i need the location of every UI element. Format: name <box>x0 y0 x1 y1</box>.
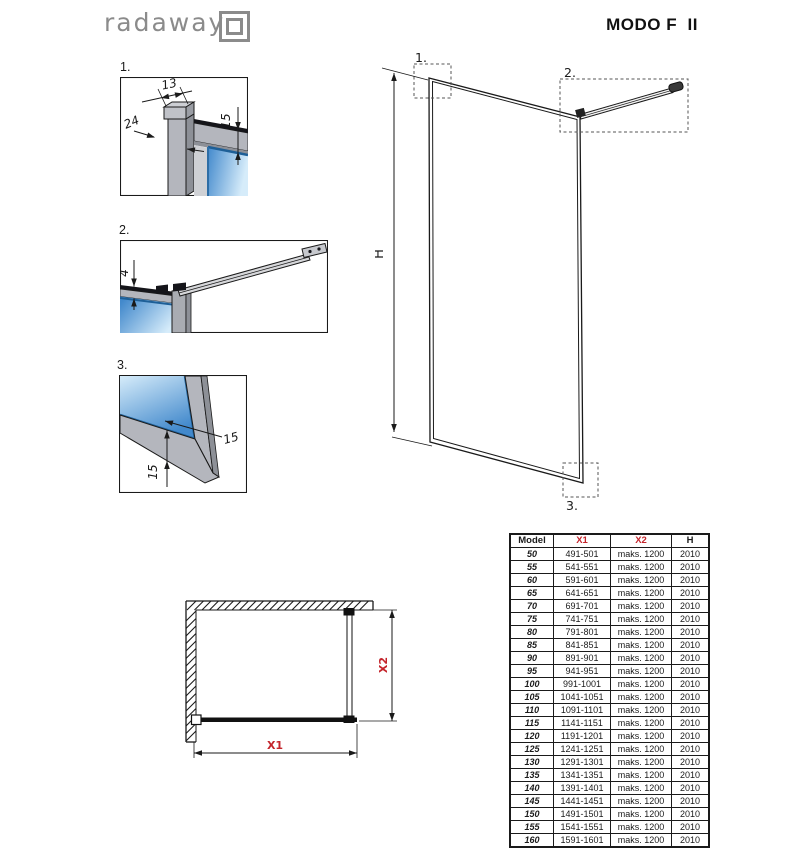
table-row: 1601591-1601maks. 12002010 <box>510 834 709 848</box>
table-cell: maks. 1200 <box>611 821 672 834</box>
table-row: 50491-501maks. 12002010 <box>510 548 709 561</box>
table-cell: 1591-1601 <box>554 834 611 848</box>
table-cell: 1491-1501 <box>554 808 611 821</box>
detail-3-drawing: 15 15 <box>119 375 247 493</box>
table-cell: 2010 <box>672 548 710 561</box>
table-row: 1201191-1201maks. 12002010 <box>510 730 709 743</box>
glass-panel-plan <box>192 715 358 725</box>
table-cell: 2010 <box>672 730 710 743</box>
radaway-logo-text: radaway <box>104 8 225 37</box>
table-cell: maks. 1200 <box>611 678 672 691</box>
table-cell: 2010 <box>672 717 710 730</box>
table-cell: 1191-1201 <box>554 730 611 743</box>
table-cell: maks. 1200 <box>611 587 672 600</box>
table-cell: 2010 <box>672 613 710 626</box>
spec-table-body: 50491-501maks. 1200201055541-551maks. 12… <box>510 548 709 848</box>
table-row: 60591-601maks. 12002010 <box>510 574 709 587</box>
table-cell: 80 <box>510 626 554 639</box>
table-cell: 2010 <box>672 743 710 756</box>
callout-2-label: 2. <box>564 65 576 80</box>
table-cell: 2010 <box>672 639 710 652</box>
wall-profile <box>168 114 194 196</box>
table-header-row: Model X1 X2 H <box>510 534 709 548</box>
table-cell: 541-551 <box>554 561 611 574</box>
table-cell: 115 <box>510 717 554 730</box>
table-cell: 641-651 <box>554 587 611 600</box>
table-row: 65641-651maks. 12002010 <box>510 587 709 600</box>
table-row: 1401391-1401maks. 12002010 <box>510 782 709 795</box>
table-cell: 991-1001 <box>554 678 611 691</box>
table-row: 100991-1001maks. 12002010 <box>510 678 709 691</box>
table-cell: 65 <box>510 587 554 600</box>
table-cell: 2010 <box>672 574 710 587</box>
svg-text:4: 4 <box>120 269 131 277</box>
svg-text:X2: X2 <box>377 657 390 673</box>
svg-text:X1: X1 <box>267 739 283 752</box>
table-cell: 591-601 <box>554 574 611 587</box>
header-x2: X2 <box>611 534 672 548</box>
table-cell: 1391-1401 <box>554 782 611 795</box>
table-row: 1501491-1501maks. 12002010 <box>510 808 709 821</box>
wall-bracket <box>668 81 684 93</box>
table-cell: 691-701 <box>554 600 611 613</box>
plan-view-drawing: X2 X1 <box>175 595 410 765</box>
table-cell: 2010 <box>672 691 710 704</box>
table-row: 1251241-1251maks. 12002010 <box>510 743 709 756</box>
table-row: 70691-701maks. 12002010 <box>510 600 709 613</box>
table-cell: 145 <box>510 795 554 808</box>
table-cell: 491-501 <box>554 548 611 561</box>
table-row: 1301291-1301maks. 12002010 <box>510 756 709 769</box>
radaway-logo-icon <box>219 11 250 42</box>
table-cell: 125 <box>510 743 554 756</box>
table-row: 1101091-1101maks. 12002010 <box>510 704 709 717</box>
table-cell: 2010 <box>672 652 710 665</box>
table-row: 1551541-1551maks. 12002010 <box>510 821 709 834</box>
table-cell: maks. 1200 <box>611 808 672 821</box>
table-cell: 90 <box>510 652 554 665</box>
table-cell: 2010 <box>672 665 710 678</box>
table-cell: 85 <box>510 639 554 652</box>
table-row: 85841-851maks. 12002010 <box>510 639 709 652</box>
table-cell: 1441-1451 <box>554 795 611 808</box>
table-cell: 2010 <box>672 769 710 782</box>
wall-profile-plan <box>192 715 202 725</box>
table-cell: 105 <box>510 691 554 704</box>
table-cell: 60 <box>510 574 554 587</box>
glass-panel <box>208 147 248 196</box>
table-cell: maks. 1200 <box>611 782 672 795</box>
table-cell: 120 <box>510 730 554 743</box>
detail-3-label: 3. <box>117 358 127 372</box>
table-cell: 75 <box>510 613 554 626</box>
callout-1-label: 1. <box>415 50 427 65</box>
table-cell: 70 <box>510 600 554 613</box>
table-row: 1351341-1351maks. 12002010 <box>510 769 709 782</box>
callout-box-3 <box>563 463 598 497</box>
detail-2-label: 2. <box>119 223 129 237</box>
table-row: 80791-801maks. 12002010 <box>510 626 709 639</box>
detail-1-label: 1. <box>120 60 130 74</box>
header-model: Model <box>510 534 554 548</box>
header-h: H <box>672 534 710 548</box>
table-cell: maks. 1200 <box>611 795 672 808</box>
table-cell: 741-751 <box>554 613 611 626</box>
table-cell: 1541-1551 <box>554 821 611 834</box>
table-cell: 140 <box>510 782 554 795</box>
table-cell: 100 <box>510 678 554 691</box>
table-cell: 160 <box>510 834 554 848</box>
logo-inner-square <box>226 18 243 35</box>
table-cell: 2010 <box>672 678 710 691</box>
support-bar <box>575 81 684 119</box>
table-cell: maks. 1200 <box>611 561 672 574</box>
table-cell: 50 <box>510 548 554 561</box>
table-cell: 130 <box>510 756 554 769</box>
table-cell: 1041-1051 <box>554 691 611 704</box>
table-row: 1451441-1451maks. 12002010 <box>510 795 709 808</box>
table-cell: maks. 1200 <box>611 652 672 665</box>
table-cell: 841-851 <box>554 639 611 652</box>
table-cell: maks. 1200 <box>611 704 672 717</box>
table-cell: 95 <box>510 665 554 678</box>
table-cell: 1241-1251 <box>554 743 611 756</box>
table-cell: 791-801 <box>554 626 611 639</box>
table-row: 95941-951maks. 12002010 <box>510 665 709 678</box>
table-cell: maks. 1200 <box>611 548 672 561</box>
table-cell: 2010 <box>672 587 710 600</box>
table-cell: 2010 <box>672 821 710 834</box>
table-cell: maks. 1200 <box>611 600 672 613</box>
product-title: MODO F II <box>606 15 698 35</box>
table-cell: 891-901 <box>554 652 611 665</box>
table-cell: 2010 <box>672 808 710 821</box>
table-cell: 1091-1101 <box>554 704 611 717</box>
table-row: 1151141-1151maks. 12002010 <box>510 717 709 730</box>
table-cell: 150 <box>510 808 554 821</box>
svg-text:15: 15 <box>146 464 160 479</box>
table-cell: maks. 1200 <box>611 730 672 743</box>
table-cell: 2010 <box>672 561 710 574</box>
detail-2-drawing: 4 <box>120 240 328 333</box>
svg-text:15: 15 <box>219 113 233 128</box>
table-cell: 2010 <box>672 795 710 808</box>
table-cell: maks. 1200 <box>611 756 672 769</box>
table-cell: maks. 1200 <box>611 665 672 678</box>
dimension-H: H <box>375 68 432 446</box>
support-bar-plan <box>344 608 355 723</box>
detail-1-drawing: 13 24 15 <box>120 77 248 196</box>
table-cell: 2010 <box>672 704 710 717</box>
callout-3-label: 3. <box>566 498 578 513</box>
table-cell: maks. 1200 <box>611 691 672 704</box>
table-cell: 135 <box>510 769 554 782</box>
table-cell: maks. 1200 <box>611 834 672 848</box>
dimension-X1: X1 <box>194 724 357 758</box>
header-x1: X1 <box>554 534 611 548</box>
table-cell: maks. 1200 <box>611 743 672 756</box>
table-cell: 2010 <box>672 626 710 639</box>
table-cell: 110 <box>510 704 554 717</box>
table-cell: maks. 1200 <box>611 769 672 782</box>
table-cell: maks. 1200 <box>611 626 672 639</box>
table-cell: 1341-1351 <box>554 769 611 782</box>
table-row: 90891-901maks. 12002010 <box>510 652 709 665</box>
spec-table: Model X1 X2 H 50491-501maks. 12002010555… <box>509 533 710 848</box>
glass-panel-outline <box>429 78 583 483</box>
table-cell: maks. 1200 <box>611 613 672 626</box>
table-cell: 1291-1301 <box>554 756 611 769</box>
table-cell: 2010 <box>672 600 710 613</box>
table-row: 1051041-1051maks. 12002010 <box>510 691 709 704</box>
table-cell: 2010 <box>672 782 710 795</box>
svg-text:H: H <box>375 249 387 259</box>
table-cell: 155 <box>510 821 554 834</box>
table-cell: 941-951 <box>554 665 611 678</box>
table-cell: maks. 1200 <box>611 574 672 587</box>
table-cell: 2010 <box>672 834 710 848</box>
elevation-drawing: 1. 2. 3. H <box>375 48 700 518</box>
spec-sheet-page: radaway MODO F II 1. 2. 3. <box>0 0 800 852</box>
table-cell: maks. 1200 <box>611 639 672 652</box>
dimension-X2: X2 <box>359 610 397 721</box>
table-cell: 2010 <box>672 756 710 769</box>
table-cell: 55 <box>510 561 554 574</box>
table-row: 75741-751maks. 12002010 <box>510 613 709 626</box>
table-row: 55541-551maks. 12002010 <box>510 561 709 574</box>
table-cell: 1141-1151 <box>554 717 611 730</box>
table-cell: maks. 1200 <box>611 717 672 730</box>
